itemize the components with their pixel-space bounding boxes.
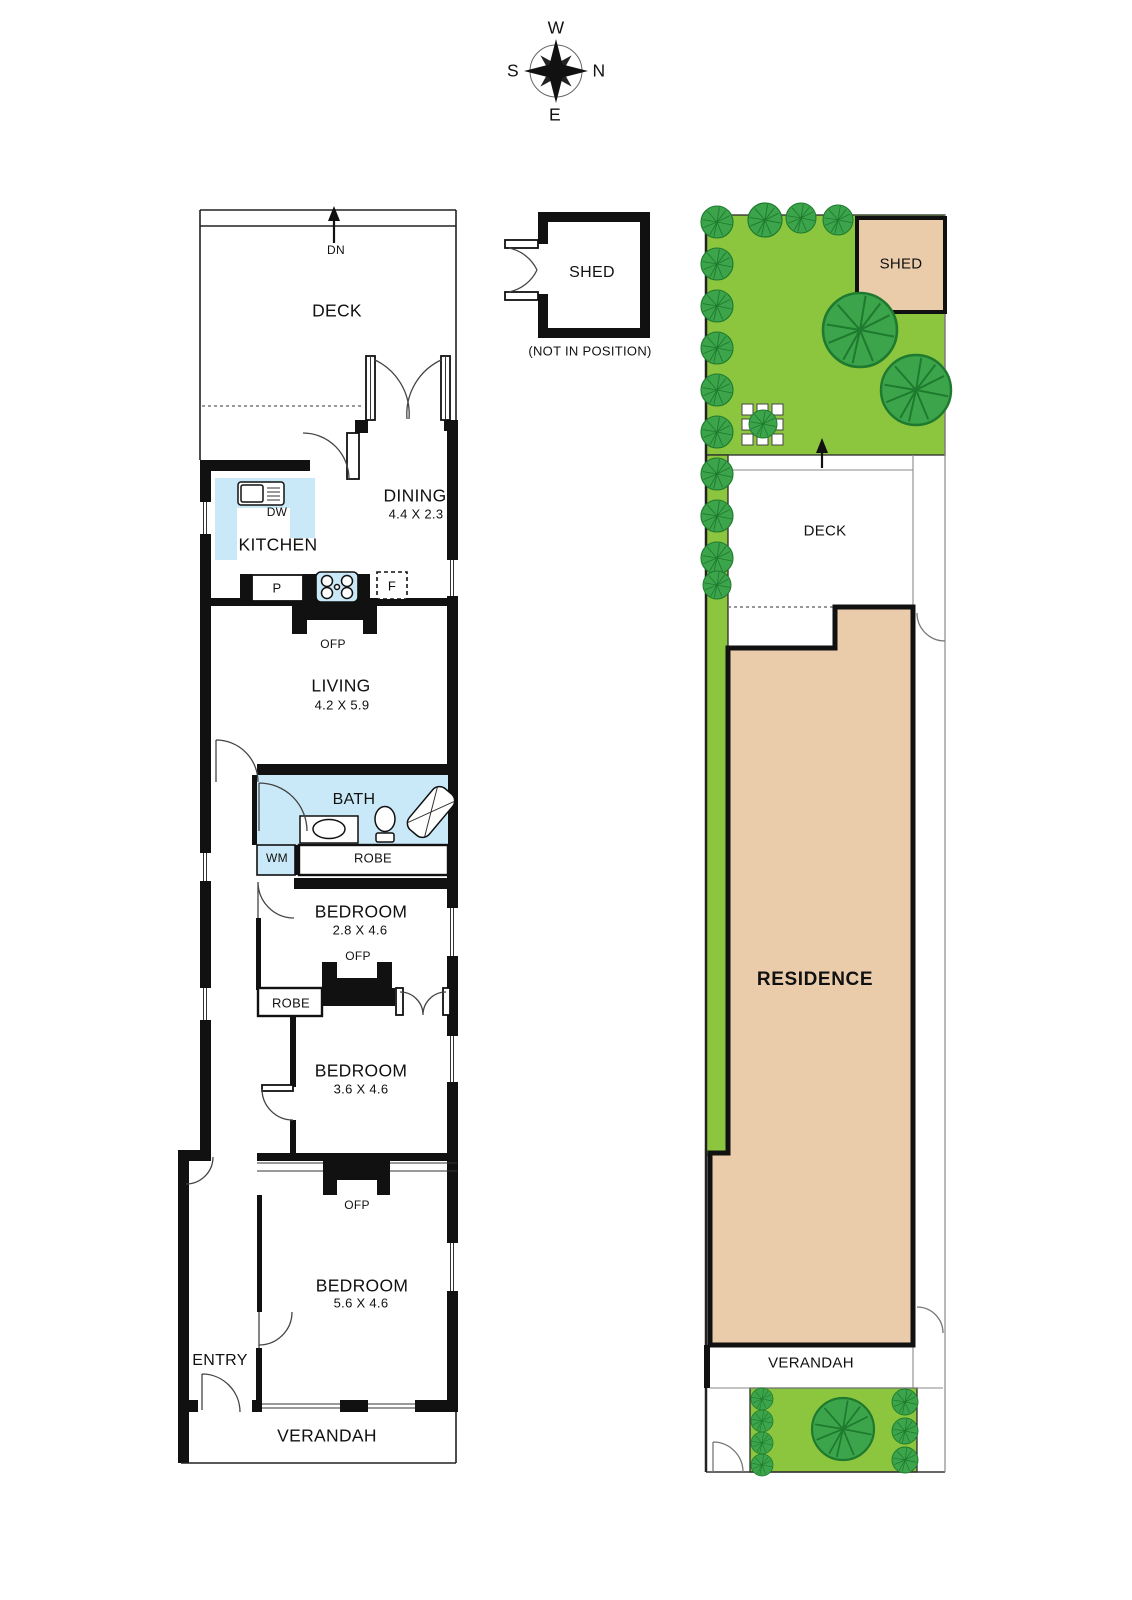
site-plan xyxy=(701,203,951,1476)
bush-icon xyxy=(701,248,733,280)
french-doors xyxy=(366,356,450,420)
pantry-label: P xyxy=(273,581,282,596)
bedroom2-label: BEDROOM xyxy=(315,1061,408,1082)
dishwasher-label: DW xyxy=(267,505,288,519)
site-verandah-label: VERANDAH xyxy=(768,1355,854,1372)
bush-icon xyxy=(701,290,733,322)
bush-icon xyxy=(701,416,733,448)
bedroom3-dims: 5.6 X 4.6 xyxy=(334,1296,389,1311)
site-residence-label: RESIDENCE xyxy=(757,969,873,991)
tree-icon xyxy=(823,293,897,367)
bush-icon xyxy=(701,332,733,364)
stairs-dn-label: DN xyxy=(327,243,345,257)
robe-bath-label: ROBE xyxy=(354,851,392,866)
ofp-bedroom1-label: OFP xyxy=(345,949,371,963)
bush-icon xyxy=(701,542,733,574)
floorplan-page: W N S E DN DECK SHED (NOT IN POSITION) D… xyxy=(0,0,1132,1600)
site-shed-label: SHED xyxy=(880,256,923,273)
bedroom3-label: BEDROOM xyxy=(316,1276,409,1297)
fireplace-icon-living xyxy=(292,606,377,634)
compass-west: W xyxy=(548,18,565,39)
bush-icon xyxy=(701,374,733,406)
bush-icon xyxy=(823,205,853,235)
bush-icon xyxy=(749,410,777,438)
fireplace-icon-bedroom1 xyxy=(322,962,395,1006)
verandah-side-wall xyxy=(704,1345,710,1388)
tree-icon xyxy=(881,355,951,425)
sink-icon xyxy=(238,482,284,505)
site-deck-label: DECK xyxy=(804,523,847,540)
kitchen-label: KITCHEN xyxy=(239,535,318,556)
robe-bedroom2-label: ROBE xyxy=(272,996,310,1011)
bush-icon xyxy=(892,1418,918,1444)
bush-icon xyxy=(892,1389,918,1415)
shed-doors xyxy=(505,240,538,300)
wm-label: WM xyxy=(266,851,288,865)
fridge-label: F xyxy=(388,579,396,594)
stair-down-arrow xyxy=(328,206,340,243)
verandah-label: VERANDAH xyxy=(277,1426,377,1447)
cooktop-icon xyxy=(316,572,358,602)
double-door-bedroom2 xyxy=(396,988,450,1015)
side-gate-arc xyxy=(917,613,945,641)
bush-icon xyxy=(701,206,733,238)
front-gate-arc xyxy=(713,1442,743,1472)
bush-icon xyxy=(703,571,731,599)
bush-icon xyxy=(701,458,733,490)
bush-icon xyxy=(786,203,816,233)
side-gate-arc xyxy=(917,1307,943,1333)
compass-north: N xyxy=(593,61,606,82)
bedroom2-dims: 3.6 X 4.6 xyxy=(334,1082,389,1097)
bath-label: BATH xyxy=(333,791,376,809)
ofp-living-label: OFP xyxy=(320,637,346,651)
dining-dims: 4.4 X 2.3 xyxy=(389,507,444,522)
compass-south: S xyxy=(507,61,519,82)
bedroom1-dims: 2.8 X 4.6 xyxy=(333,923,388,938)
deck-label: DECK xyxy=(312,301,362,322)
floor-plan xyxy=(178,206,458,1463)
toilet-icon xyxy=(375,807,395,843)
bush-icon xyxy=(892,1447,918,1473)
bush-icon xyxy=(751,1454,773,1476)
living-label: LIVING xyxy=(311,676,370,697)
living-dims: 4.2 X 5.9 xyxy=(315,698,370,713)
dining-label: DINING xyxy=(383,486,446,507)
ofp-bedroom3-label: OFP xyxy=(344,1198,370,1212)
tree-icon xyxy=(812,1398,874,1460)
plan-graphics xyxy=(0,0,1132,1600)
bush-icon xyxy=(748,203,782,237)
bush-icon xyxy=(701,500,733,532)
entry-label: ENTRY xyxy=(192,1352,247,1370)
compass-east: E xyxy=(549,105,561,126)
shed-note: (NOT IN POSITION) xyxy=(528,344,651,359)
vanity-icon xyxy=(300,816,358,843)
bedroom1-label: BEDROOM xyxy=(315,902,408,923)
compass-icon xyxy=(524,39,588,103)
bush-icon xyxy=(751,1388,773,1410)
fireplace-icon-bedroom3 xyxy=(257,1158,457,1195)
shed-label: SHED xyxy=(569,264,615,282)
bush-icon xyxy=(751,1432,773,1454)
bush-icon xyxy=(751,1410,773,1432)
